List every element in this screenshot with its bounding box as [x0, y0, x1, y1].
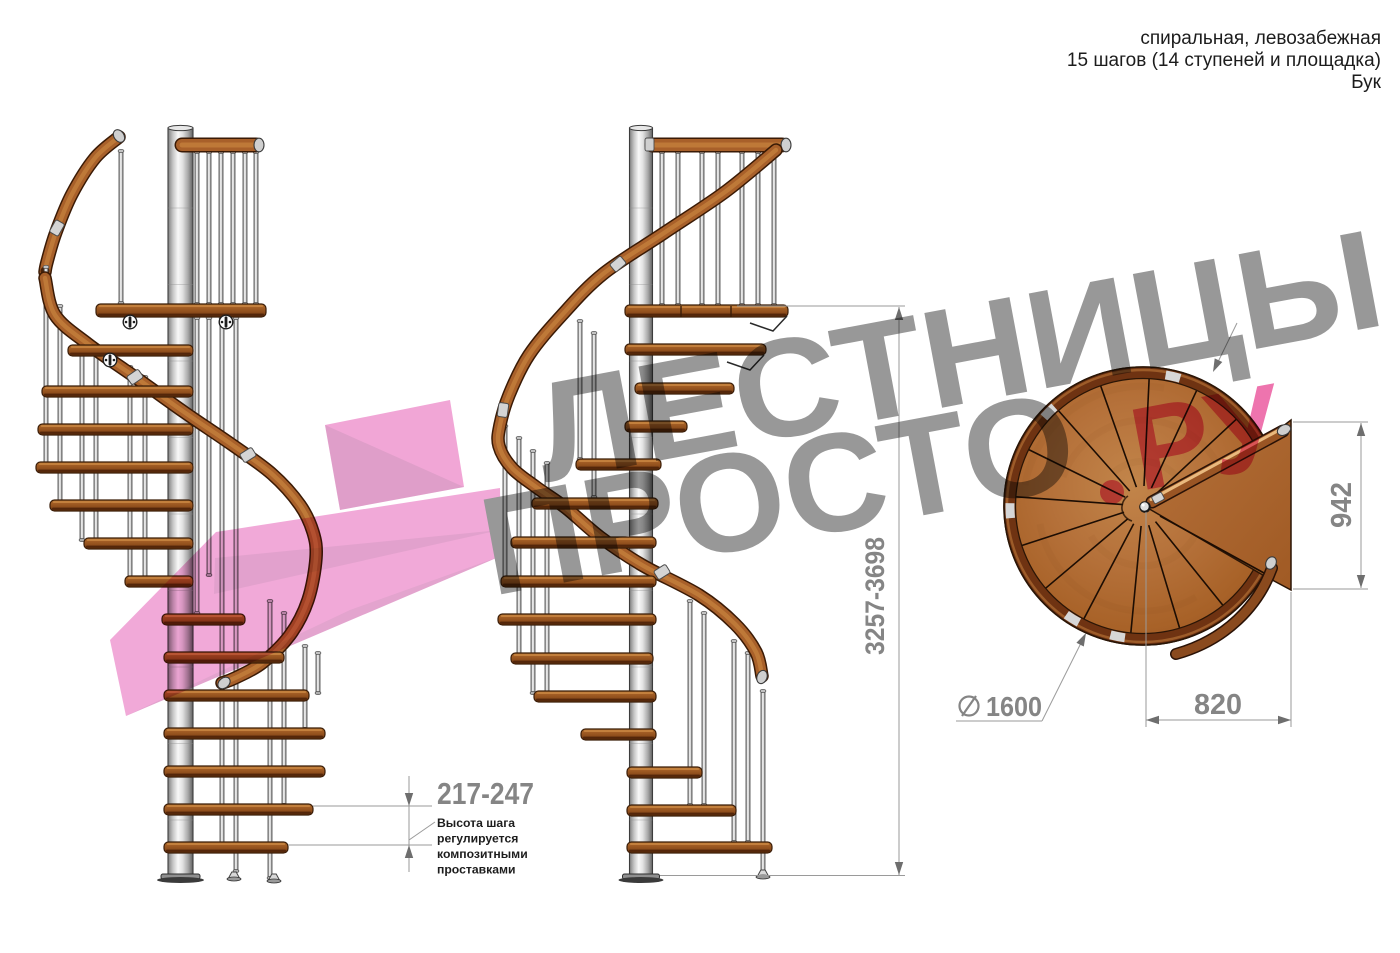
svg-text:1600: 1600 [986, 691, 1042, 722]
svg-text:217-247: 217-247 [437, 776, 534, 811]
svg-text:Высота шагарегулируетсякомпози: Высота шагарегулируетсякомпозитнымипрост… [437, 816, 528, 877]
svg-text:РУ: РУ [1121, 359, 1295, 517]
svg-text:820: 820 [1194, 689, 1242, 721]
svg-text:942: 942 [1326, 482, 1358, 528]
